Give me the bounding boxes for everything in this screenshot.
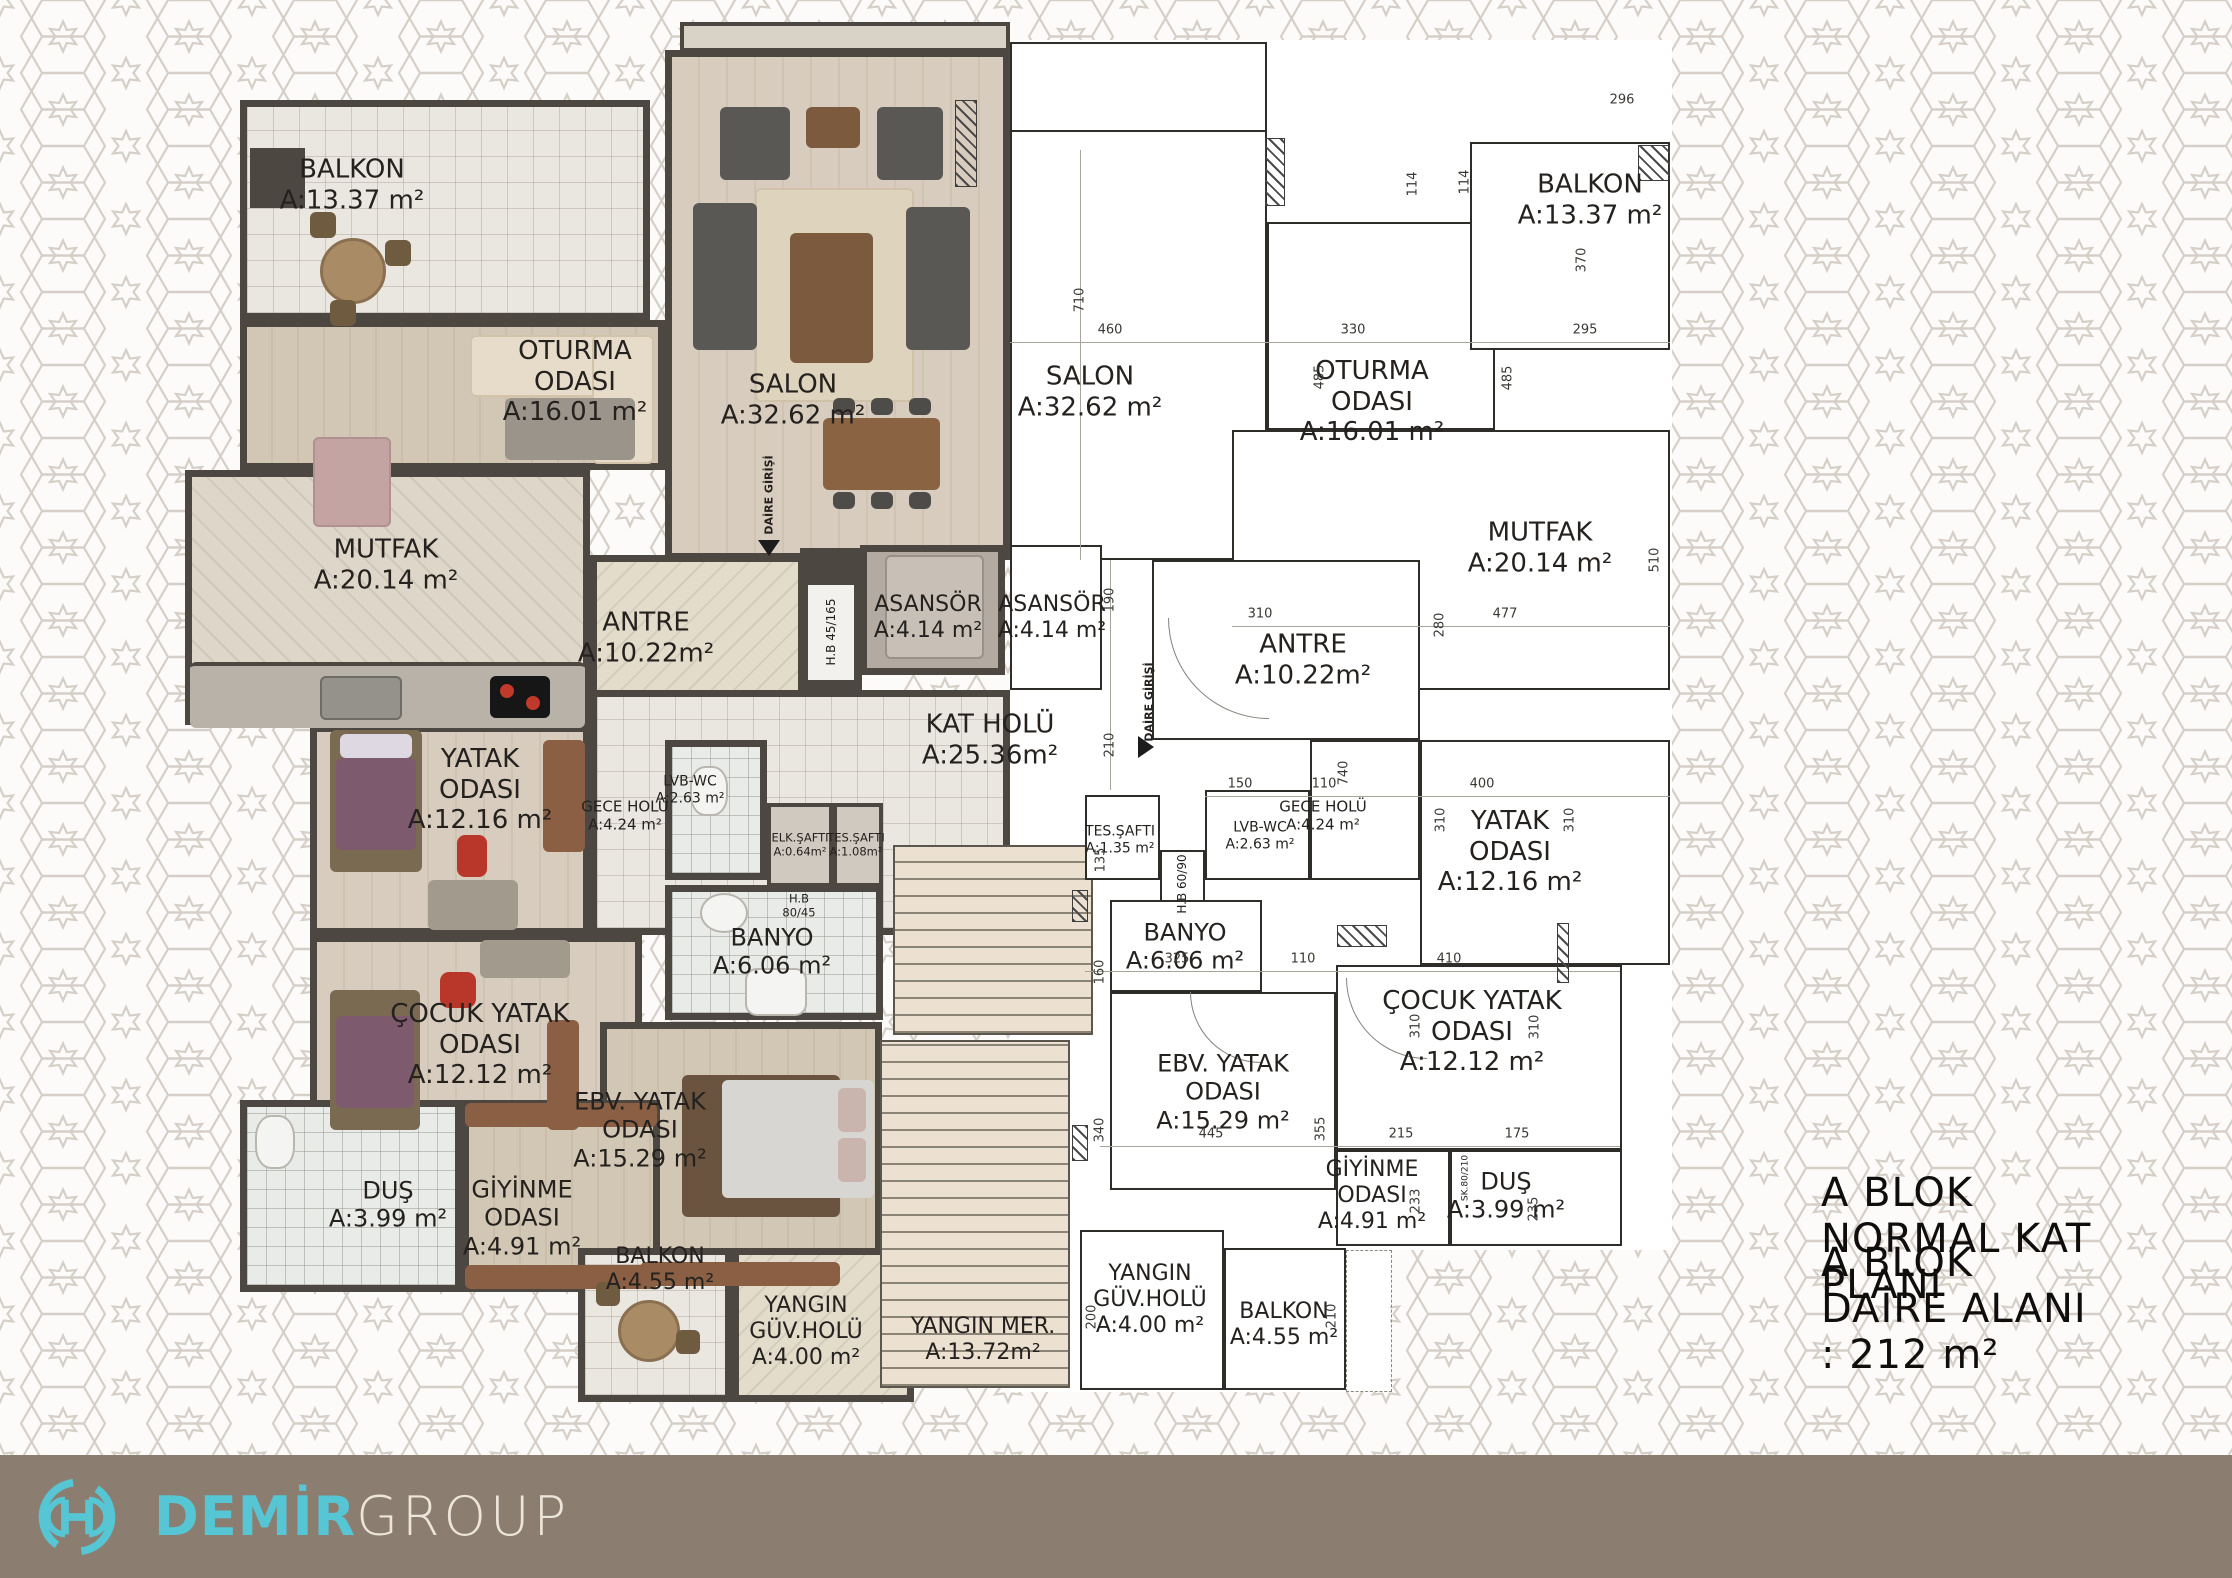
room-label-yangin-guv-right: YANGIN GÜV.HOLÜ A:4.00 m² [1093,1261,1206,1339]
room-name: YATAK [1438,806,1583,837]
dim-line [1080,150,1081,560]
room-label-ebv-right: EBV. YATAK ODASI A:15.29 m² [1156,1050,1289,1135]
room-area: A:20.14 m² [1468,548,1613,579]
burner-shape [526,696,540,710]
label-hb-6090: H.B 60/90 [1175,854,1189,913]
dimension-label: 710 [1073,288,1088,313]
room-name: SALON [1018,361,1163,392]
dim-line [1010,342,1670,343]
label-daire-girisi-right: DAİRE GİRİŞİ [1144,662,1157,741]
balcony-dashed-edge [1346,1250,1392,1392]
sink-shape [320,676,402,720]
desk-shape [480,940,570,978]
floor-plan-page: BALKON A:13.37 m² OTURMA ODASI A:16.01 m… [0,0,2232,1578]
room-label-mutfak-left: MUTFAK A:20.14 m² [314,534,459,595]
room-label-asansor-left: ASANSÖR A:4.14 m² [874,592,982,644]
armchair-shape [877,107,943,180]
room-name: YANGIN [749,1293,862,1319]
room-label-yangin-mer: YANGIN MER. A:13.72m² [911,1314,1056,1366]
room-label-ebv-left: EBV. YATAK ODASI A:15.29 m² [573,1088,706,1173]
room-area: A:4.00 m² [749,1345,862,1371]
dimension-label: 280 [1433,613,1448,638]
room-area: A:4.55 m² [1230,1325,1338,1351]
terrace-right [1010,42,1267,132]
room-name: DUŞ [329,1177,447,1205]
dimension-label: 410 [1437,952,1462,967]
sofa-shape [906,207,970,350]
sk-label: SK.80/210 [1461,1155,1471,1201]
room-name: BALKON [280,154,425,185]
label-daire-girisi-left: DAİRE GİRİŞİ [764,455,777,534]
side-table-shape [806,107,860,148]
dimension-label: 340 [1093,1118,1108,1143]
dimension-label: 210 [1103,733,1118,758]
dimension-label: 295 [1573,323,1598,338]
room-area: A:4.55 m² [606,1270,714,1296]
room-area: A:4.14 m² [874,618,982,644]
dimension-label: 190 [1103,588,1118,613]
dimension-label: 310 [1528,1015,1543,1040]
chair-shape [310,212,336,238]
wall-hatch [1072,1125,1088,1161]
chair-shape [909,492,931,509]
plan-title-line2: A BLOK DAİRE ALANI : 212 m² [1821,1240,2095,1378]
dim-line [1100,1146,1620,1147]
chair-shape [676,1330,700,1354]
entrance-arrow-icon [758,540,780,556]
room-label-oturma-left: OTURMA ODASI A:16.01 m² [503,336,648,428]
chair-shape [871,492,893,509]
room-area: A:16.01 m² [1300,417,1445,448]
label-hb-8045: H.B 80/45 [782,892,815,919]
room-name: OTURMA [503,336,648,367]
brand-name-secondary: GROUP [356,1485,570,1548]
dimension-label: 110 [1312,777,1337,792]
room-label-cocuk-left: ÇOCUK YATAK ODASI A:12.12 m² [390,999,569,1091]
room-name: ODASI [390,1030,569,1061]
dimension-label: 160 [1093,960,1108,985]
dimension-label: 135 [1094,848,1109,873]
dimension-label: 114 [1406,172,1421,197]
dimension-label: 330 [1341,323,1366,338]
room-area: A:4.24 m² [581,816,669,834]
dimension-label: 215 [1389,1127,1414,1142]
room-area: A:4.91 m² [463,1232,581,1260]
room-name: ELK.ŞAFTI [771,831,828,845]
wall-hatch [1337,925,1387,947]
room-name: ODASI [503,367,648,398]
pillow-shape [838,1088,866,1132]
chair-shape [871,398,893,415]
wall-hatch [955,100,977,187]
room-label-lvb-wc-right: LVB-WC A:2.63 m² [1226,819,1295,852]
room-name: LVB-WC [656,773,725,790]
room-label-asansor-right: ASANSÖR A:4.14 m² [998,592,1106,644]
hb-line: H.B [824,645,838,666]
demirgroup-logo-icon [34,1474,120,1560]
armchair-shape [720,107,790,180]
room-area: A:32.62 m² [721,400,866,431]
dimension-label: 445 [1199,1127,1224,1142]
dimension-label: 477 [1493,607,1518,622]
dimension-label: 235 [1527,1197,1542,1222]
room-name: KAT HOLÜ [922,709,1058,740]
plan-area-text: A BLOK DAİRE ALANI : 212 m² [1821,1240,2087,1378]
dimension-label: 460 [1098,323,1123,338]
red-chair-shape [457,835,487,877]
room-name: ODASI [573,1116,706,1144]
room-area: A:1.08m² [827,845,884,859]
dimension-label: 296 [1610,93,1635,108]
room-name: ODASI [463,1204,581,1232]
room-area: A:6.06 m² [713,952,831,980]
room-area: A:2.63 m² [656,790,725,807]
entrance-label: DAİRE GİRİŞİ [1143,662,1156,741]
room-area: A:10.22m² [578,638,714,669]
room-name: SALON [721,369,866,400]
dimension-label: 310 [1409,1014,1424,1039]
room-label-banyo-right: BANYO A:6.06 m² [1126,919,1244,976]
dimension-label: 370 [1575,248,1590,273]
room-name: ODASI [1156,1078,1289,1106]
room-name: GİYİNME [1318,1157,1426,1183]
room-name: GÜV.HOLÜ [749,1319,862,1345]
room-area: A:12.12 m² [1382,1047,1561,1078]
room-label-balkon-bottom-right: BALKON A:4.55 m² [1230,1299,1338,1351]
room-label-balkon-top-right: BALKON A:13.37 m² [1518,169,1663,230]
room-area: A:15.29 m² [573,1144,706,1172]
dimension-label: 310 [1248,607,1273,622]
room-name: ODASI [408,775,553,806]
kitchen-table-shape [313,437,391,527]
room-area: A:10.22m² [1235,660,1371,691]
room-name: EBV. YATAK [573,1088,706,1116]
room-name: ÇOCUK YATAK [1382,986,1561,1017]
room-label-salon-right: SALON A:32.62 m² [1018,361,1163,422]
room-name: TES.ŞAFTI [827,831,884,845]
brand-lockup: DEMİRGROUP [34,1474,570,1560]
terrace-rail-left [680,22,1010,52]
dimension-label: 114 [1458,170,1473,195]
dim-line [1205,796,1670,797]
room-area: A:13.37 m² [280,185,425,216]
room-name: EBV. YATAK [1156,1050,1289,1078]
room-label-yatak-right: YATAK ODASI A:12.16 m² [1438,806,1583,898]
label-hb-45165: H.B 45/165 [824,599,838,666]
hb-line: H.B 60/90 [1175,854,1189,913]
round-table-shape [320,238,386,304]
room-area: A:0.64m² [771,845,828,859]
wall-hatch [1557,923,1569,983]
coffee-table-shape [790,233,873,363]
room-area: A:12.12 m² [390,1060,569,1091]
toilet-shape [255,1115,295,1169]
room-name: MUTFAK [1468,517,1613,548]
room-name: GECE HOLÜ [1279,798,1367,816]
room-label-yangin-guv-left: YANGIN GÜV.HOLÜ A:4.00 m² [749,1293,862,1371]
room-area: A:12.16 m² [1438,867,1583,898]
desk-shape [428,880,518,930]
chair-shape [909,398,931,415]
dimension-label: 110 [1291,952,1316,967]
dim-line [1232,626,1670,627]
room-label-mutfak-right: MUTFAK A:20.14 m² [1468,517,1613,578]
room-name: BALKON [1230,1299,1338,1325]
brand-name-primary: DEMİR [154,1485,356,1548]
room-name: LVB-WC [1226,819,1295,836]
round-table-shape [618,1300,680,1362]
burner-shape [500,684,514,698]
dimension-label: 233 [1409,1189,1424,1214]
room-name: ODASI [1438,837,1583,868]
room-name: TES.ŞAFTI [1085,823,1155,840]
pillow-shape [340,734,412,758]
hb-line: H.B [782,892,815,906]
room-salon-right [1010,130,1267,560]
dimension-label: 310 [1563,808,1578,833]
room-area: A:16.01 m² [503,397,648,428]
chair-shape [330,300,356,326]
dimension-label: 510 [1648,548,1663,573]
dimension-label: 485 [1501,366,1516,391]
hb-line: 45/165 [824,599,838,641]
room-area: A:12.16 m² [408,805,553,836]
room-label-elk-safti: ELK.ŞAFTI A:0.64m² [771,831,828,858]
dimension-label: 400 [1470,777,1495,792]
room-name: BANYO [713,924,831,952]
room-name: BALKON [1518,169,1663,200]
entrance-arrow-icon [1138,736,1154,758]
room-area: A:13.37 m² [1518,200,1663,231]
dimension-label: 200 [1085,1305,1100,1330]
chair-shape [833,492,855,509]
room-label-salon-left: SALON A:32.62 m² [721,369,866,430]
room-label-banyo-left: BANYO A:6.06 m² [713,924,831,981]
room-area: A:4.14 m² [998,618,1106,644]
room-label-tes-safti-left: TES.ŞAFTI A:1.08m² [827,831,884,858]
room-name: YATAK [408,744,553,775]
main-stairs [893,845,1093,1035]
label-sk-80210: SK.80/210 [1461,1155,1472,1201]
room-area: A:13.72m² [911,1340,1056,1366]
dimension-label: 355 [1314,1117,1329,1142]
room-label-kat-holu: KAT HOLÜ A:25.36m² [922,709,1058,770]
wall-hatch [1265,138,1285,206]
room-label-balkon-top-left: BALKON A:13.37 m² [280,154,425,215]
room-name: YANGIN MER. [911,1314,1056,1340]
brand-name: DEMİRGROUP [154,1485,570,1548]
room-label-dus-left: DUŞ A:3.99 m² [329,1177,447,1234]
room-area: A:2.63 m² [1226,836,1295,853]
room-label-giyinme-left: GİYİNME ODASI A:4.91 m² [463,1176,581,1261]
room-label-antre-right: ANTRE A:10.22m² [1235,629,1371,690]
room-name: ASANSÖR [874,592,982,618]
room-name: GİYİNME [463,1176,581,1204]
dimension-label: 150 [1228,777,1253,792]
room-area: A:3.99 m² [329,1205,447,1233]
dimension-label: 175 [1505,1127,1530,1142]
entrance-label: DAİRE GİRİŞİ [763,455,776,534]
room-area: A:25.36m² [922,740,1058,771]
room-name: ANTRE [578,607,714,638]
room-name: BANYO [1126,919,1244,947]
room-name: ODASI [1300,387,1445,418]
hb-line: 80/45 [782,906,815,920]
footer-bar: DEMİRGROUP [0,1455,2232,1578]
room-area: A:4.00 m² [1093,1313,1206,1339]
room-name: ANTRE [1235,629,1371,660]
room-name: ASANSÖR [998,592,1106,618]
room-label-yatak-left: YATAK ODASI A:12.16 m² [408,744,553,836]
room-name: GÜV.HOLÜ [1093,1287,1206,1313]
room-name: MUTFAK [314,534,459,565]
dimension-label: 325 [1165,952,1190,967]
sofa-shape [693,203,757,350]
room-area: A:20.14 m² [314,565,459,596]
cooktop-shape [490,676,550,718]
dimension-label: 210 [1325,1304,1340,1329]
dimension-label: 740 [1337,761,1352,786]
room-label-antre-left: ANTRE A:10.22m² [578,607,714,668]
blanket-shape [336,758,416,850]
chair-shape [385,240,411,266]
wall-hatch [1072,890,1088,922]
room-label-lvb-wc-left: LVB-WC A:2.63 m² [656,773,725,806]
room-name: YANGIN [1093,1261,1206,1287]
pillow-shape [838,1138,866,1182]
room-name: BALKON [606,1244,714,1270]
dimension-label: 310 [1434,808,1449,833]
dimension-label: 485 [1313,365,1328,390]
room-name: ÇOCUK YATAK [390,999,569,1030]
room-label-balkon-bottom-left: BALKON A:4.55 m² [606,1244,714,1296]
room-area: A:32.62 m² [1018,392,1163,423]
